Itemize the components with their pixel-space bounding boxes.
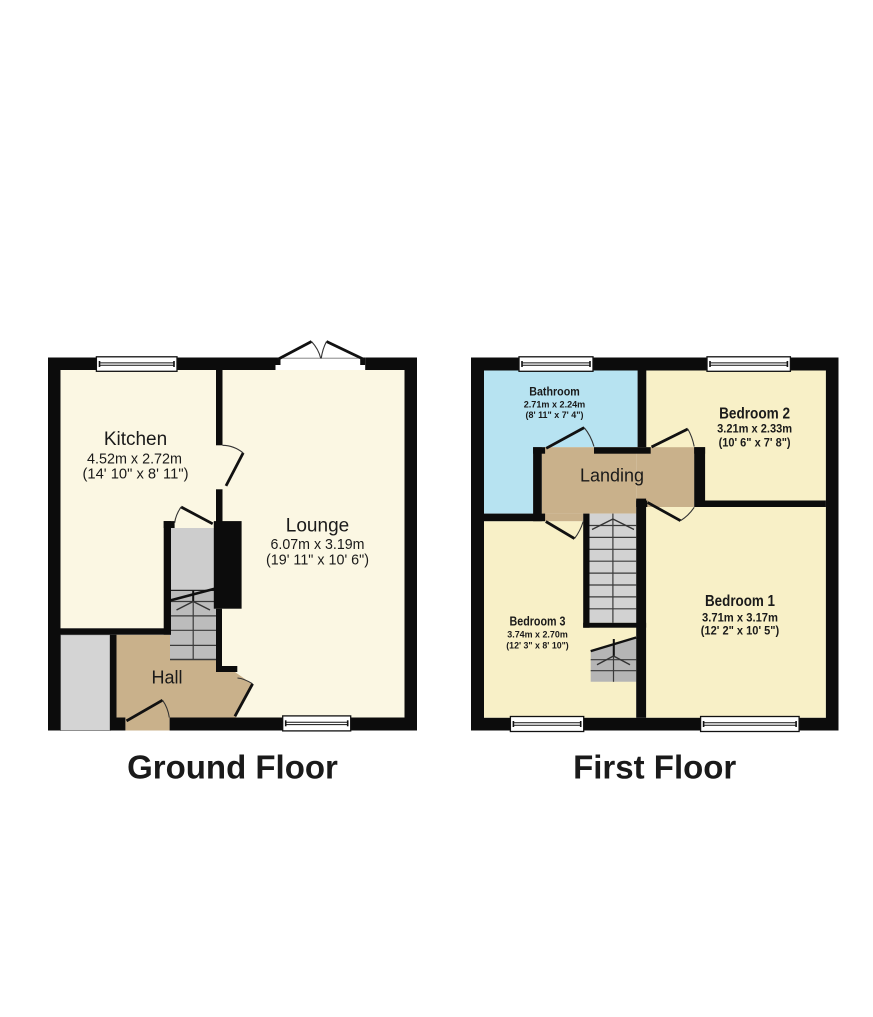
svg-text:Bedroom 3: Bedroom 3 [510,615,566,629]
svg-text:(12' 3" x 8' 10"): (12' 3" x 8' 10") [506,641,569,652]
svg-text:Bedroom 1: Bedroom 1 [705,593,775,610]
svg-text:(12' 2" x 10' 5"): (12' 2" x 10' 5") [701,626,780,638]
svg-text:2.71m x 2.24m: 2.71m x 2.24m [524,400,586,411]
svg-text:3.71m x 3.17m: 3.71m x 3.17m [702,613,778,625]
svg-text:Lounge: Lounge [286,516,349,537]
svg-text:(19' 11" x 10' 6"): (19' 11" x 10' 6") [266,552,369,569]
svg-text:3.21m x 2.33m: 3.21m x 2.33m [717,424,792,436]
svg-text:Bedroom 2: Bedroom 2 [719,406,790,423]
svg-text:(8' 11" x 7' 4"): (8' 11" x 7' 4") [526,410,584,421]
svg-text:Hall: Hall [151,668,182,688]
svg-text:Landing: Landing [580,466,644,486]
svg-text:6.07m x 3.19m: 6.07m x 3.19m [271,536,365,553]
svg-text:Bathroom: Bathroom [529,385,580,399]
svg-text:Kitchen: Kitchen [104,429,167,450]
svg-text:(10' 6" x 7' 8"): (10' 6" x 7' 8") [719,438,791,450]
svg-text:Ground Floor: Ground Floor [127,749,338,786]
svg-text:First Floor: First Floor [573,749,736,786]
svg-text:3.74m x 2.70m: 3.74m x 2.70m [507,630,568,641]
svg-text:(14' 10" x 8' 11"): (14' 10" x 8' 11") [83,466,189,483]
